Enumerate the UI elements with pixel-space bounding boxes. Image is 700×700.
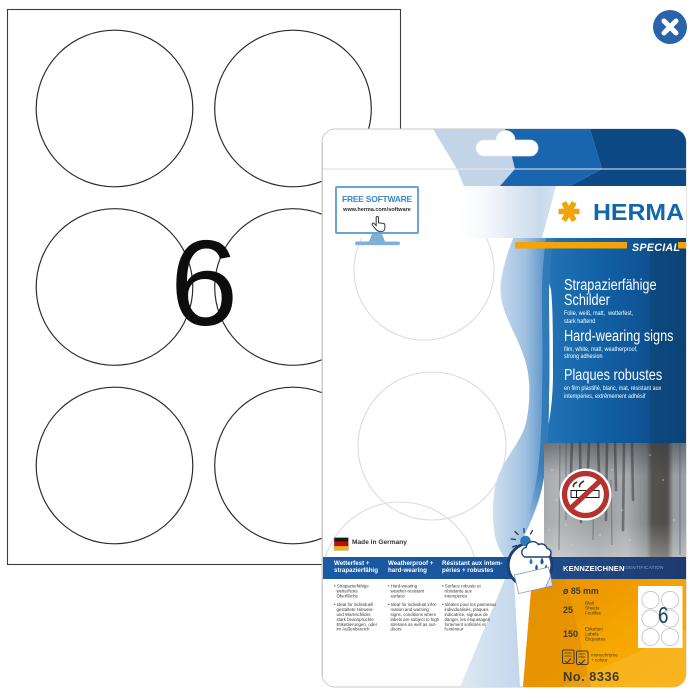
- svg-text:SPECIAL: SPECIAL: [632, 242, 680, 254]
- svg-text:HERMA: HERMA: [593, 199, 684, 225]
